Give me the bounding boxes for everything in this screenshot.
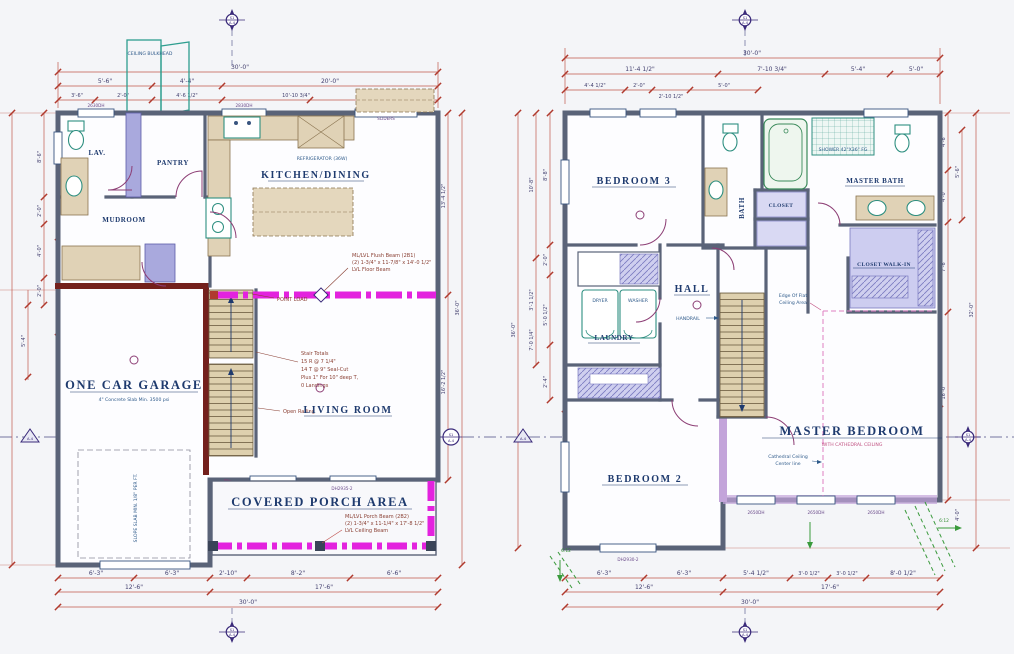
dim-label: 5'-4" — [851, 66, 865, 73]
room-label-bed2: BEDROOM 2 — [608, 474, 683, 485]
dim-label: 2'-10 1/2" — [659, 94, 684, 100]
marker-text: A-4 — [742, 21, 749, 25]
room-label-bath: BATH — [738, 197, 746, 219]
rear-stoop — [356, 89, 434, 112]
dim-label: 3'-0 1/2" — [798, 571, 819, 577]
marker-text: S1 — [743, 16, 748, 20]
porch-door-tag: DH2935-2 — [331, 486, 353, 491]
dim-label: 4'-4 1/2" — [584, 83, 605, 89]
dryer — [582, 290, 618, 338]
marker-text: A-4 — [229, 21, 236, 25]
stair-note: 0 Landings — [301, 383, 329, 389]
walkin-closet: CLOSET WALK-IN — [850, 228, 935, 308]
hall-closet — [757, 221, 806, 246]
dim-label: 4'-4" — [180, 78, 194, 85]
marker-text: S1 — [230, 16, 235, 20]
beam-note: ML/LVL Flush Beam (2B1) — [352, 253, 415, 259]
garage-note: 4" Concrete Slab Min. 3500 psi — [99, 397, 170, 403]
dim-label: 20'-0" — [321, 78, 339, 85]
tub — [764, 119, 807, 189]
pantry-wall — [126, 113, 141, 197]
toilet-tank — [895, 125, 910, 134]
dim-label: 5'-0" — [718, 83, 730, 89]
dim-label: 3'-1 1/2" — [529, 289, 535, 310]
room-label-lav: LAV. — [88, 149, 105, 157]
edge-flat-note: Ceiling Area — [779, 300, 807, 306]
marker-text: S1 — [449, 433, 454, 437]
dim-label: 13'-4 1/2" — [441, 184, 447, 209]
closet-label: CLOSET — [769, 203, 794, 209]
dim-label: 30'-0" — [239, 599, 257, 606]
lav-sink — [66, 176, 82, 196]
room-label-mudroom: MUDROOM — [102, 216, 145, 224]
bulkhead-label: CEILING BULKHEAD — [128, 51, 173, 57]
toilet-tank — [68, 121, 84, 131]
covered-porch: DH2935-2 ML/LVL Porch Beam (2B2) (2) 1-3… — [208, 481, 436, 555]
porch-beam-note: LVL Ceiling Beam — [345, 528, 388, 534]
room-label-porch: COVERED PORCH AREA — [231, 495, 408, 509]
room-label-living: LIVING ROOM — [304, 405, 393, 416]
vanity-sink — [907, 201, 925, 216]
marker-text: S1 — [230, 628, 235, 632]
slope-note: SLOPE SLAB MIN. 1/8" PER FT. — [133, 474, 139, 543]
dim-label: 36'-0" — [455, 300, 461, 315]
dim-label: 17'-6" — [821, 584, 839, 591]
edge-flat-note: Edge Of Flat — [779, 293, 807, 299]
marker-text: S1 — [966, 433, 971, 437]
marker-text: A-4 — [448, 439, 455, 443]
dim-label: 2'-0" — [37, 205, 43, 217]
dim-label: 2'-0" — [543, 254, 549, 266]
pitch-label: 6:12 — [561, 548, 571, 554]
dim-label: 30'-0" — [743, 50, 761, 57]
washer — [620, 290, 656, 338]
dim-label: 2'-0" — [633, 83, 645, 89]
dim-label: 8'-2" — [291, 570, 305, 577]
room-label-laundry: LAUNDRY — [595, 334, 634, 342]
dim-label: 6'-3" — [165, 570, 179, 577]
handrail-label: HANDRAIL — [676, 316, 700, 322]
slider-tag: SLIDERS — [377, 116, 395, 121]
dryer-label: DRYER — [592, 298, 608, 304]
marker-text: A-4 — [27, 437, 34, 441]
room-label-master-bath: MASTER BATH — [846, 177, 904, 185]
dim-label: 3'-0 1/2" — [836, 571, 857, 577]
dim-label: 6'-3" — [677, 570, 691, 577]
dim-label: 5'-4" — [21, 335, 27, 347]
dim-label: 16'-2 1/2" — [441, 370, 447, 395]
dim-label: 4'-0" — [37, 245, 43, 257]
porch-beam-note: (2) 1-3/4" x 11-1/4" x 17'-8 1/2" — [345, 521, 424, 527]
stair-note: 14 T @ 9" Seal-Cut — [301, 367, 348, 373]
dim-label: 4'-0" — [955, 509, 961, 521]
dim-label: 30'-0" — [231, 64, 249, 71]
dim-label: 8'-6" — [37, 151, 43, 163]
room-label-bed3: BEDROOM 3 — [597, 176, 672, 187]
drawing-sheet: 30'-0" 5'-6" 4'-4" 20'-0" 3'-6" 2'-0" 4'… — [0, 0, 1014, 654]
dim-label: 10'-8" — [529, 177, 535, 192]
master-wall-highlight — [719, 410, 727, 502]
window-tag: DH2930-2 — [617, 557, 639, 562]
dim-label: 5'-0" — [909, 66, 923, 73]
dim-label: 2'-10" — [219, 570, 237, 577]
master-sub-label: WITH CATHEDRAL CEILING — [822, 442, 883, 448]
pitch-label: 6:12 — [939, 518, 949, 524]
first-floor-plan: 30'-0" 5'-6" 4'-4" 20'-0" 3'-6" 2'-0" 4'… — [0, 40, 465, 610]
dim-label: 5'-0 1/2" — [543, 304, 549, 325]
toilet — [69, 131, 84, 150]
room-label-pantry: PANTRY — [157, 159, 189, 167]
stair-note: Stair Totals — [301, 351, 329, 357]
dim-label: 5'-4 1/2" — [743, 570, 769, 577]
dim-label: 6'-6" — [387, 570, 401, 577]
shower-label: SHOWER 42"X36" FG — [819, 147, 868, 153]
beam-note: (2) 1-3/4" x 11-7/8" x 14'-0 1/2" — [352, 260, 431, 266]
marker-text: A-4 — [520, 437, 527, 441]
window-tag: 2630DH — [87, 103, 104, 108]
mudroom-closet — [145, 244, 175, 282]
marker-text: S1 — [743, 628, 748, 632]
dim-label: 6'-3" — [597, 570, 611, 577]
window-tag: 2830DH — [235, 103, 252, 108]
beam-note: LVL Floor Beam — [352, 267, 391, 273]
window-tag: 2650DH — [867, 510, 884, 515]
room-label-garage: ONE CAR GARAGE — [65, 378, 203, 392]
room-label-hall: HALL — [675, 284, 710, 295]
toilet-tank — [723, 124, 738, 133]
dim-label: 10'-10 3/4" — [282, 93, 310, 99]
dim-label: 7'-0 1/4" — [529, 329, 535, 350]
dim-label: 30'-0" — [741, 599, 759, 606]
refrigerator-label: REFRIGERATOR (36W) — [297, 156, 348, 162]
room-label-walkin: CLOSET WALK-IN — [857, 262, 911, 268]
window-tag: 2650DH — [747, 510, 764, 515]
dim-label: 7'-10 3/4" — [757, 66, 787, 73]
plan1-stairs — [209, 290, 253, 456]
toilet — [895, 134, 909, 152]
dim-label: 5'-6" — [98, 78, 112, 85]
dim-label: 8'-8" — [543, 169, 549, 181]
dim-label: 3'-6" — [71, 93, 83, 99]
window-tag: 2650DH — [807, 510, 824, 515]
stair-note: Plus 1" For 10" deep T, — [301, 375, 359, 381]
vanity-sink — [868, 201, 886, 216]
porch-beam-note: ML/LVL Porch Beam (2B2) — [345, 514, 409, 520]
floor-plan-drawing: 30'-0" 5'-6" 4'-4" 20'-0" 3'-6" 2'-0" 4'… — [0, 0, 1014, 654]
dim-label: 12'-6" — [125, 584, 143, 591]
cathedral-note: Center line — [775, 461, 800, 467]
point-load-note: POINT LOAD — [277, 297, 308, 303]
room-label-master: MASTER BEDROOM — [780, 424, 925, 438]
room-label-kitchen: KITCHEN/DINING — [261, 170, 371, 181]
toilet — [723, 133, 737, 151]
washer-label: WASHER — [628, 298, 649, 304]
dim-label: 17'-6" — [315, 584, 333, 591]
dim-label: 2'-4" — [543, 376, 549, 388]
marker-text: A-4 — [742, 633, 749, 637]
stair-note: 15 R @ 7 1/4" — [301, 359, 336, 365]
dim-label: 11'-4 1/2" — [625, 66, 655, 73]
bath-sink — [709, 181, 723, 199]
mudroom-bench — [62, 246, 140, 280]
dim-label: 8'-0 1/2" — [890, 570, 916, 577]
kitchen-sink — [224, 117, 260, 138]
marker-text: A-4 — [965, 438, 972, 442]
cathedral-note: Cathedral Ceiling — [768, 454, 808, 460]
dim-label: 6'-3" — [89, 570, 103, 577]
dim-label: 4'-6 1/2" — [176, 93, 197, 99]
marker-text: A-4 — [229, 633, 236, 637]
dim-label: 5'-6" — [955, 166, 961, 178]
dim-label: 32'-0" — [969, 302, 975, 317]
dim-label: 12'-6" — [635, 584, 653, 591]
dim-label: 2'-0" — [37, 285, 43, 297]
dim-label: 36'-0" — [511, 322, 517, 337]
